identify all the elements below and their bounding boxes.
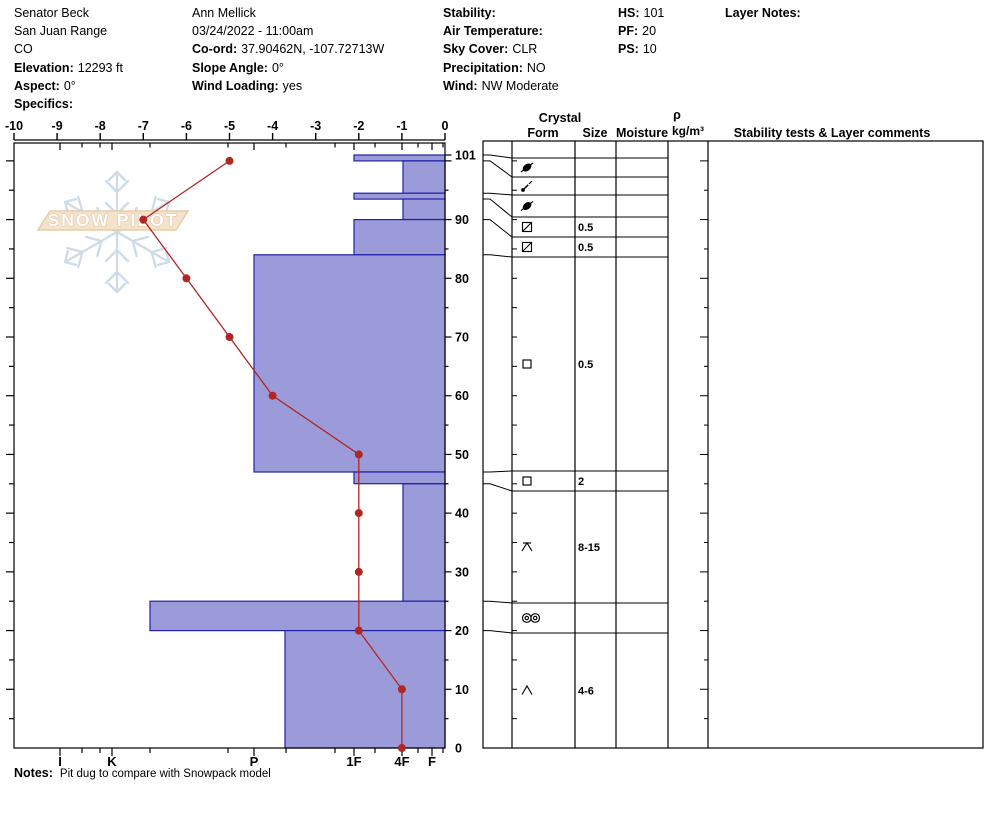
profile-chart: SNOW PILOT -10-9-8-7-6-5-4-3-2-10IKP1F4F… (0, 0, 994, 840)
depth-label: 0 (455, 742, 462, 756)
temperature-point (182, 274, 190, 282)
temp-tick-label: -5 (224, 119, 235, 133)
crystal-size-value: 0.5 (578, 242, 593, 254)
temperature-point (226, 333, 234, 341)
hardness-bar (403, 199, 445, 220)
snowflake-icon (60, 172, 175, 292)
depth-label: 30 (455, 565, 469, 579)
col-header-form: Form (527, 126, 558, 140)
hardness-bar (354, 220, 445, 255)
temperature-point (398, 744, 406, 752)
temp-tick-label: -3 (310, 119, 321, 133)
table-border (483, 141, 983, 748)
temperature-point (226, 157, 234, 165)
hardness-bar (354, 193, 445, 199)
hardness-label: F (428, 754, 436, 769)
layer-connector (483, 601, 512, 603)
notes-text: Pit dug to compare with Snowpack model (60, 768, 271, 780)
hardness-bar (150, 601, 445, 630)
layer-connector (483, 161, 512, 177)
fc-icon (523, 360, 531, 368)
fc-icon (523, 477, 531, 485)
layer-connector (483, 199, 512, 217)
temp-tick-label: -9 (52, 119, 63, 133)
mf-crust-icon (523, 614, 532, 623)
depth-label: 70 (455, 331, 469, 345)
depth-label: 80 (455, 272, 469, 286)
crystal-size-value: 0.5 (578, 359, 593, 371)
col-header-moisture: Moisture (616, 126, 668, 140)
depth-label: 90 (455, 213, 469, 227)
col-header-density-units: kg/m³ (672, 124, 704, 138)
crystal-size-value: 2 (578, 476, 584, 488)
snowpilot-report: Senator Beck San Juan Range CO Elevation… (0, 0, 994, 840)
temp-tick-label: -2 (353, 119, 364, 133)
crystal-size-value: 8-15 (578, 542, 600, 554)
hardness-bar (254, 255, 445, 472)
temp-tick-label: -7 (138, 119, 149, 133)
depth-label: 40 (455, 507, 469, 521)
mf-crust-icon (531, 614, 540, 623)
layer-connector (483, 484, 512, 491)
col-header-comments: Stability tests & Layer comments (734, 126, 931, 140)
temperature-point (355, 568, 363, 576)
temperature-point (355, 627, 363, 635)
crystal-size-value: 4-6 (578, 686, 594, 698)
fcxr-icon (523, 243, 532, 252)
temp-tick-label: -1 (396, 119, 407, 133)
dh-capped-icon (522, 543, 532, 551)
pit-notes: Notes:Pit dug to compare with Snowpack m… (14, 766, 271, 780)
df-icon (524, 185, 528, 189)
layer-connector (483, 471, 512, 472)
mf-crust-icon (525, 616, 528, 619)
temperature-point (398, 685, 406, 693)
hardness-bar (403, 484, 445, 601)
fcxr-icon (523, 223, 532, 232)
layer-connector (483, 193, 512, 195)
depth-label: 101 (455, 148, 476, 162)
layer-connector (483, 155, 512, 158)
hardness-bar (403, 161, 445, 193)
col-header-size: Size (582, 126, 607, 140)
hardness-label: 1F (346, 754, 361, 769)
temp-tick-label: -6 (181, 119, 192, 133)
mf-crust-icon (534, 616, 537, 619)
snowpilot-logo: SNOW PILOT (38, 172, 188, 292)
hardness-bar (354, 472, 445, 484)
layer-connector (483, 220, 512, 237)
crystal-size-value: 0.5 (578, 222, 593, 234)
temperature-point (355, 509, 363, 517)
hardness-bar (354, 155, 445, 161)
temp-tick-label: -8 (95, 119, 106, 133)
layer-table: CrystalFormSizeMoistureρkg/m³Stability t… (483, 108, 983, 748)
temp-tick-label: 0 (442, 119, 449, 133)
depth-label: 60 (455, 389, 469, 403)
dh-icon (522, 686, 532, 695)
col-header-crystal: Crystal (539, 111, 581, 125)
df-icon (522, 189, 525, 192)
layer-connector (483, 631, 512, 633)
temp-tick-label: -4 (267, 119, 278, 133)
temperature-point (355, 450, 363, 458)
hardness-bar (285, 631, 445, 748)
df-icon (529, 181, 532, 184)
col-header-density: ρ (673, 108, 681, 122)
hardness-label: 4F (394, 754, 409, 769)
temp-tick-label: -10 (5, 119, 23, 133)
depth-label: 20 (455, 624, 469, 638)
hardness-bars (150, 155, 445, 748)
temperature-point (139, 216, 147, 224)
layer-connector (483, 255, 512, 257)
depth-label: 10 (455, 683, 469, 697)
depth-label: 50 (455, 448, 469, 462)
temperature-point (269, 392, 277, 400)
logo-text: SNOW PILOT (48, 210, 179, 230)
notes-label: Notes: (14, 766, 53, 780)
